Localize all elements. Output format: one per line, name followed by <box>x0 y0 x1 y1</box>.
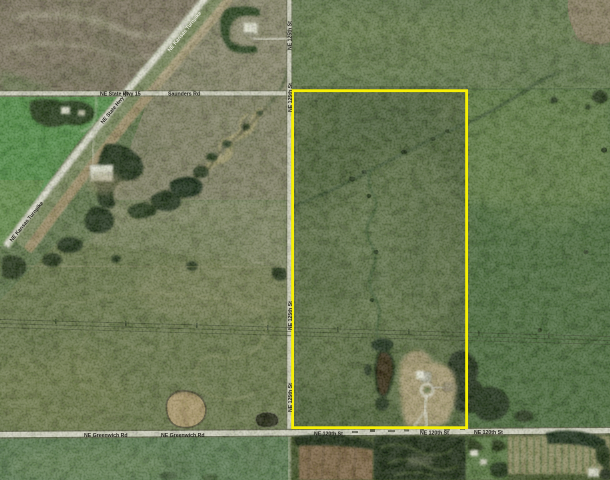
svg-text:NE 125th St: NE 125th St <box>288 83 294 112</box>
svg-text:Saunders Rd: Saunders Rd <box>168 92 200 98</box>
svg-text:NE 120th St: NE 120th St <box>314 431 343 437</box>
svg-text:NE 120th St: NE 120th St <box>474 430 503 436</box>
svg-text:NE Greenwich Rd: NE Greenwich Rd <box>84 433 128 439</box>
svg-text:NE 120th St: NE 120th St <box>420 431 449 437</box>
svg-text:NE 125th St: NE 125th St <box>288 383 294 412</box>
svg-text:NE 125th St: NE 125th St <box>288 301 294 330</box>
svg-text:NE Greenwich Rd: NE Greenwich Rd <box>161 433 205 439</box>
svg-text:NE 125th St: NE 125th St <box>288 21 294 50</box>
